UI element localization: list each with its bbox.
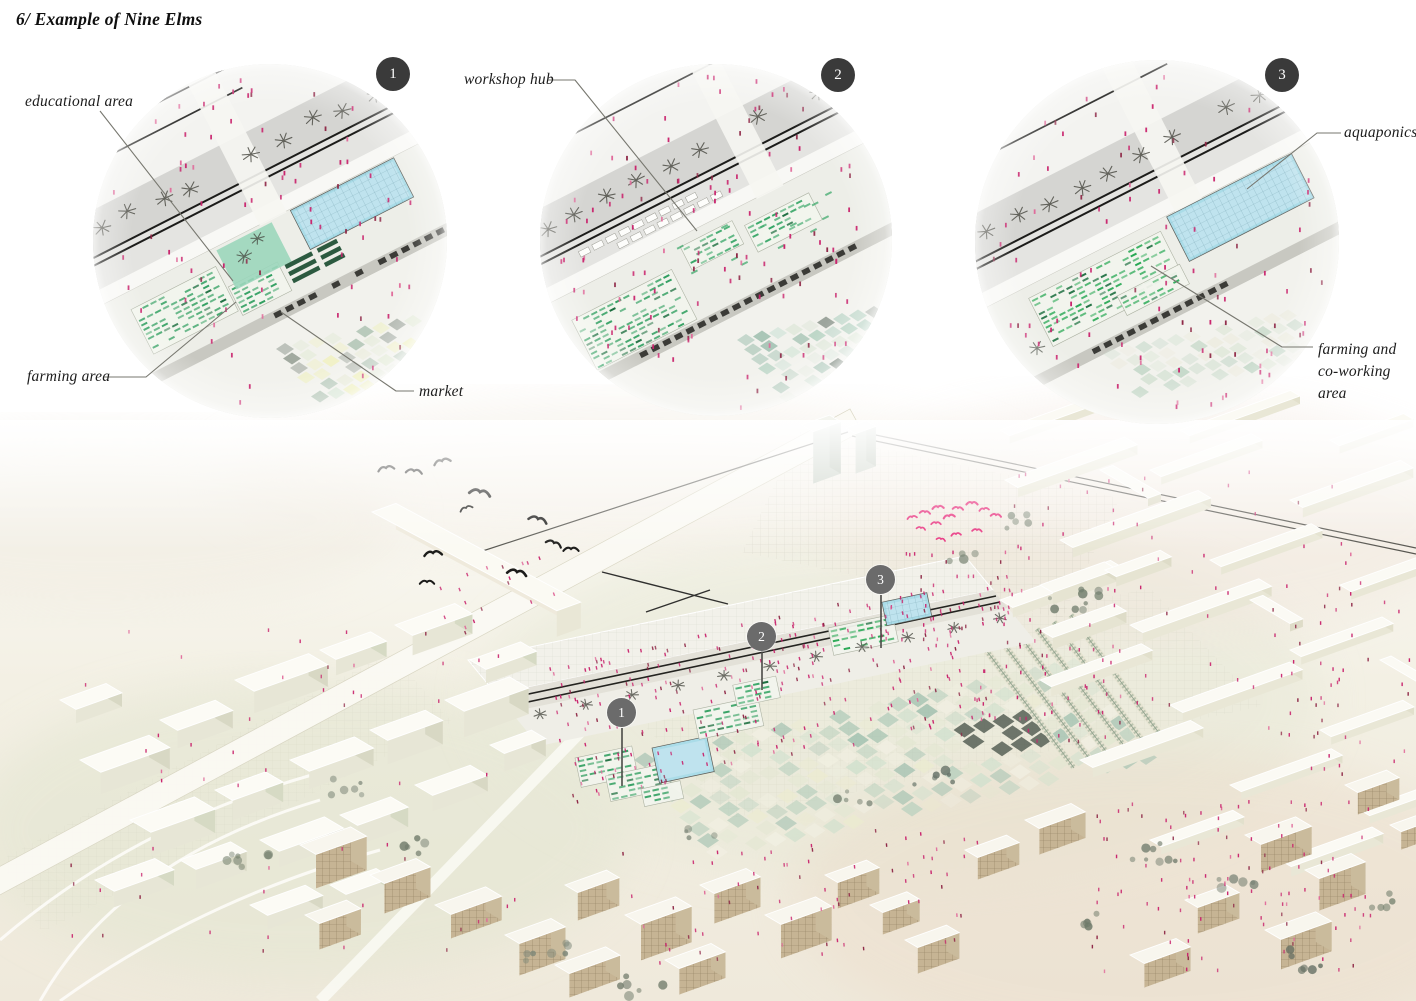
detail-badge-1: 1 xyxy=(376,57,410,91)
main-panorama xyxy=(0,390,1416,1001)
detail-badge-2: 2 xyxy=(821,58,855,92)
label-aquaponics: aquaponics xyxy=(1344,124,1416,142)
page-title: 6/ Example of Nine Elms xyxy=(16,9,202,30)
label-farming-area: farming area xyxy=(27,368,110,386)
label-workshop-hub: workshop hub xyxy=(464,71,554,89)
label-farming-coworking: farming and co-working area xyxy=(1318,339,1416,405)
map-marker-2: 2 xyxy=(747,622,776,651)
detail-badge-3: 3 xyxy=(1265,58,1299,92)
presentation-board: { "title": "6/ Example of Nine Elms", "v… xyxy=(0,0,1416,1001)
map-marker-3: 3 xyxy=(866,565,895,594)
label-educational-area: educational area xyxy=(25,93,133,111)
map-marker-1: 1 xyxy=(607,698,636,727)
label-market: market xyxy=(419,383,463,401)
masterplan-illustration xyxy=(0,0,1416,1001)
